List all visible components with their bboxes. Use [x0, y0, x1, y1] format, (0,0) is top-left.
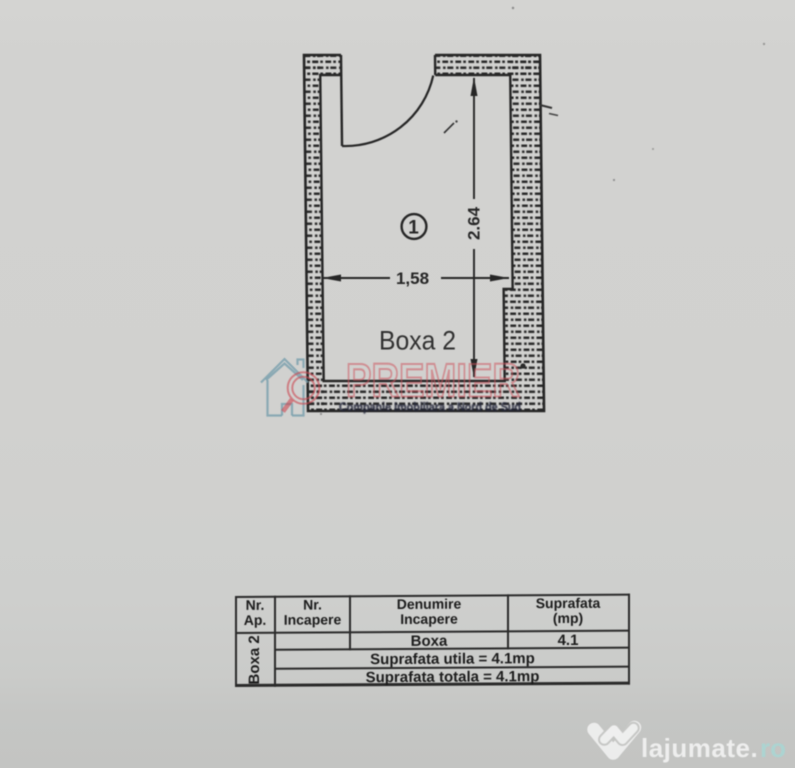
- svg-text:lajumate.: lajumate.: [641, 733, 758, 763]
- svg-text:ro: ro: [760, 733, 786, 763]
